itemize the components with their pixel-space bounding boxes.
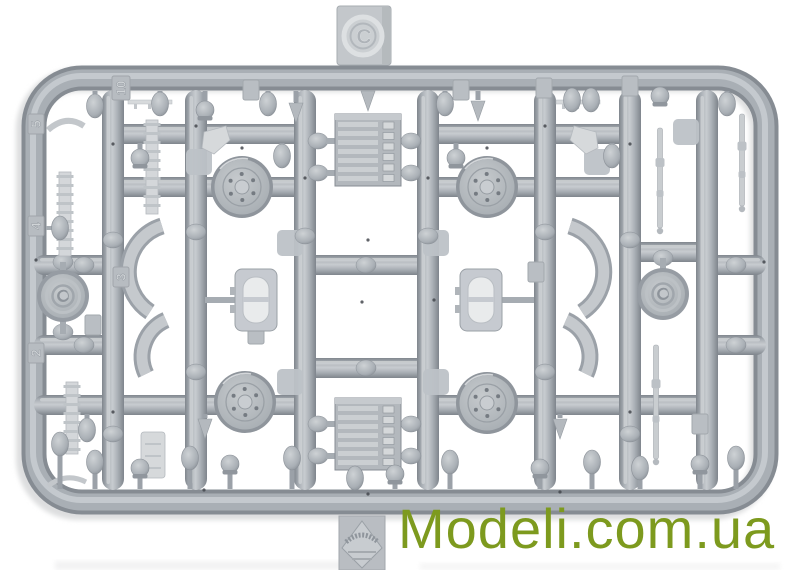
ejector-speck (432, 298, 435, 301)
runner-vertical (534, 90, 556, 490)
runner-vertical-highlight (422, 96, 426, 484)
molded-pad (423, 369, 449, 395)
ejector-speck (194, 124, 197, 127)
ball-joint (620, 232, 640, 248)
road-wheel-bolt (229, 179, 233, 183)
number-tab-label: 2 (29, 349, 44, 356)
gate-stem (590, 472, 595, 489)
bulb-part (79, 418, 96, 442)
track-strip-rung (144, 141, 161, 144)
ball-joint (308, 133, 328, 149)
gate-stem (476, 91, 481, 100)
ball-joint (74, 337, 94, 353)
engine-block-rib (338, 149, 378, 154)
number-tab-label: 3 (114, 273, 129, 280)
ball-joint (103, 232, 123, 248)
road-wheel-bolt (496, 178, 500, 182)
ejector-speck (628, 142, 631, 145)
ejector-speck (366, 238, 369, 241)
barrel-rod-collar (657, 190, 664, 197)
road-wheel-bolt (232, 407, 236, 411)
ball-joint (308, 448, 328, 464)
barrel-rod-collar (656, 158, 665, 167)
ejector-speck (366, 492, 369, 495)
photo-noise (55, 561, 345, 570)
road-wheel-bolt (474, 179, 478, 183)
dome-part-base (223, 470, 238, 475)
road-wheel-bolt (496, 191, 500, 195)
road-wheel-hub (480, 396, 494, 410)
bulb-part (87, 94, 104, 118)
bulb-part (437, 92, 454, 116)
ejector-speck (485, 146, 488, 149)
track-strip-rung (57, 193, 74, 196)
engine-block-rib (338, 433, 378, 438)
track-strip-rung (64, 421, 81, 424)
ball-joint (401, 416, 421, 432)
ball-joint (308, 416, 328, 432)
number-tab-10: 10 (112, 76, 130, 100)
gate-stem (203, 414, 208, 418)
engine-block-rib (338, 140, 378, 145)
barrel-rod-collar (738, 142, 747, 151)
bulb-part (152, 92, 169, 116)
ball-joint (401, 165, 421, 181)
gate-stem (290, 468, 295, 489)
engine-block-slot (383, 406, 394, 413)
gate-letter-tab: C (337, 6, 391, 65)
comb-rod-tooth (134, 104, 137, 109)
engine-block-slot (383, 143, 394, 150)
gate-stem (58, 454, 63, 489)
manufacturer-tab (339, 516, 385, 570)
road-wheel-bolt (474, 408, 478, 412)
bulb-part (564, 88, 581, 112)
engine-block-rib (338, 460, 378, 465)
track-strip-rung (144, 177, 161, 180)
ejector-speck (34, 258, 37, 261)
sprue-photo: C 10 5 4 2 3 Modeli.com.ua (0, 0, 800, 570)
engine-block-rib (338, 451, 378, 456)
dome-part-base (133, 474, 148, 479)
bulb-part (260, 92, 277, 116)
comb-rod-tooth (148, 104, 151, 109)
ejector-speck (111, 142, 114, 145)
ball-joint (620, 426, 640, 442)
engine-block-slot (383, 427, 394, 434)
runner-vertical (417, 90, 439, 490)
blank-tab-plate (85, 315, 101, 335)
ball-joint (103, 426, 123, 442)
runner-vertical-highlight (624, 96, 628, 484)
blank-tab-plate (453, 80, 469, 100)
engine-block-rib (338, 176, 378, 181)
road-wheel-bolt (232, 394, 236, 398)
road-wheel-bolt (240, 198, 244, 202)
ball-joint (186, 224, 206, 240)
ejector-speck (111, 410, 114, 413)
runner-bar-highlight (636, 245, 701, 249)
bulb-part (442, 450, 459, 474)
number-tab-4: 4 (28, 216, 44, 236)
barrel-rod-tip (739, 206, 745, 212)
bulb-part (274, 144, 291, 168)
track-strip-rung (144, 195, 161, 198)
molded-pad (277, 369, 303, 395)
engine-block-rib (338, 415, 378, 420)
track-strip-rung (144, 123, 161, 126)
road-wheel-bolt (485, 388, 489, 392)
bulb-part (604, 144, 621, 168)
engine-block-rib (338, 158, 378, 163)
track-strip-rung (144, 132, 161, 135)
track-strip-rung (144, 186, 161, 189)
number-tab-5: 5 (28, 114, 44, 134)
gate-stem (558, 414, 563, 418)
ejector-speck (543, 124, 546, 127)
barrel-rod-tip (653, 459, 659, 465)
engine-block-slot (383, 133, 394, 140)
hatch-hinge (230, 305, 236, 313)
ball-joint (726, 337, 746, 353)
dome-part-base (449, 164, 464, 169)
engine-block-rib (338, 406, 378, 411)
blank-tab-plate (692, 414, 708, 434)
runner-vertical-highlight (107, 96, 111, 484)
ball-joint (74, 257, 94, 273)
ball-joint (726, 257, 746, 273)
ball-joint (401, 133, 421, 149)
ejector-speck (360, 300, 363, 303)
blank-tab-plate (536, 78, 552, 98)
road-wheel-bolt (485, 172, 489, 176)
track-strip-rung (57, 211, 74, 214)
gate-stem (454, 143, 459, 149)
barrel-rod-collar (739, 171, 746, 178)
barrel-rod (658, 128, 663, 228)
barrel-rod (740, 114, 745, 206)
road-wheel-hub (480, 180, 494, 194)
number-tab-label: 5 (29, 120, 44, 127)
road-wheel-bolt (496, 394, 500, 398)
engine-block-slot (383, 417, 394, 424)
number-tab-3: 3 (113, 267, 129, 287)
sprue-generated-geometry (28, 76, 780, 570)
blank-tab-plate (528, 262, 544, 282)
hatch-bar (468, 297, 494, 302)
ball-joint (535, 224, 555, 240)
road-wheel-bolt (251, 178, 255, 182)
bulb-part (728, 446, 745, 470)
engine-block-slot (383, 459, 394, 466)
engine-block-slot (383, 164, 394, 171)
engine-block-slot (383, 122, 394, 129)
road-wheel-hub (235, 180, 249, 194)
ejector-speck (426, 176, 429, 179)
hatch-hinge (230, 287, 236, 295)
road-wheel-bolt (496, 407, 500, 411)
number-tab-label: 10 (114, 81, 129, 95)
bulb-part (632, 456, 649, 480)
ejector-speck (558, 490, 561, 493)
ejector-speck (762, 260, 765, 263)
ball-joint (308, 165, 328, 181)
engine-block-rib (338, 424, 378, 429)
road-wheel-bolt (474, 395, 478, 399)
bulb-part (52, 216, 69, 240)
hatch-hinge (455, 305, 461, 313)
engine-block-rib (338, 131, 378, 136)
connector-stub (205, 297, 237, 303)
road-wheel-bolt (254, 393, 258, 397)
connector-stub (502, 297, 534, 303)
photo-noise (420, 563, 780, 570)
engine-block-cap (335, 398, 401, 404)
dome-part-base (533, 474, 548, 479)
road-wheel-bolt (474, 192, 478, 196)
barrel-rod (654, 345, 659, 459)
road-wheel-bolt (240, 172, 244, 176)
track-strip-rung (64, 412, 81, 415)
bulb-part (52, 432, 69, 456)
track-strip-rung (64, 403, 81, 406)
track-strip-rung (144, 204, 161, 207)
ball-joint (535, 364, 555, 380)
runner-vertical-highlight (299, 96, 303, 484)
bulb-part (182, 446, 199, 470)
gate-stem (138, 143, 143, 149)
cone-part (471, 101, 485, 121)
dome-part-base (693, 470, 708, 475)
engine-block-rib (338, 442, 378, 447)
gate-stem (734, 468, 739, 489)
gate-stem (93, 91, 98, 94)
engine-block-slot (383, 175, 394, 182)
gate-stem (188, 468, 193, 489)
bulb-part (347, 466, 364, 490)
track-strip-rung (64, 430, 81, 433)
track-strip-rung (57, 175, 74, 178)
bulb-part (719, 92, 736, 116)
engine-block-rib (338, 167, 378, 172)
gate-stem (448, 472, 453, 489)
gate-stem (294, 91, 299, 102)
ejector-speck (240, 146, 243, 149)
gate-stem (93, 472, 98, 489)
molded-pad (673, 119, 699, 145)
bulb-part (87, 450, 104, 474)
track-strip-rung (57, 247, 74, 250)
molded-pad (186, 149, 212, 175)
road-wheel-bolt (243, 413, 247, 417)
ejector-speck (202, 488, 205, 491)
track-strip-rung (64, 394, 81, 397)
runner-bar-highlight (40, 258, 107, 262)
ball-joint (295, 228, 315, 244)
dome-part-base (388, 480, 403, 485)
ball-joint (356, 257, 376, 273)
bulb-part (583, 88, 600, 112)
track-strip-rung (57, 202, 74, 205)
hatch-hinge (455, 287, 461, 295)
ball-joint (401, 448, 421, 464)
ejector-speck (628, 410, 631, 413)
track-strip-rung (144, 168, 161, 171)
road-wheel-bolt (485, 414, 489, 418)
engine-block-cap (335, 114, 401, 120)
road-wheel-bolt (254, 406, 258, 410)
gate-stem (203, 91, 208, 101)
engine-block-slot (383, 154, 394, 161)
engine-block-rib (338, 122, 378, 127)
bulb-part (284, 446, 301, 470)
bulb-part (584, 450, 601, 474)
road-wheel-bolt (485, 198, 489, 202)
blank-tab-plate (622, 76, 638, 96)
road-wheel-hub (238, 395, 252, 409)
gate-letter: C (356, 26, 371, 49)
gate-stem (85, 414, 90, 418)
track-strip-rung (57, 184, 74, 187)
track-strip-rung (64, 385, 81, 388)
ball-joint (186, 364, 206, 380)
runner-vertical-highlight (539, 96, 543, 484)
dome-part-base (653, 102, 668, 107)
cone-part (361, 91, 375, 111)
ball-joint (356, 360, 376, 376)
sprue-graphic: C 10 5 4 2 3 Modeli.com.ua (0, 0, 800, 570)
blank-tab-plate (243, 80, 259, 100)
road-wheel-bolt (243, 387, 247, 391)
engine-block-slot (383, 438, 394, 445)
dome-part-base (133, 164, 148, 169)
small-curved-part (48, 121, 84, 130)
barrel-rod-collar (652, 379, 661, 388)
runner-bar-highlight (434, 127, 624, 131)
road-wheel-bolt (229, 192, 233, 196)
watermark-text: Modeli.com.ua (398, 497, 775, 560)
hatch-bar (243, 297, 269, 302)
ejector-speck (303, 176, 306, 179)
barrel-rod-collar (653, 416, 660, 423)
road-wheel-bolt (251, 191, 255, 195)
runner-bar-highlight (40, 338, 107, 342)
engine-block-slot (383, 448, 394, 455)
dome-part-base (198, 116, 213, 121)
ball-joint (418, 228, 438, 244)
barrel-rod-tip (657, 228, 663, 234)
number-tab-label: 4 (29, 222, 44, 230)
number-tab-2: 2 (28, 343, 44, 363)
